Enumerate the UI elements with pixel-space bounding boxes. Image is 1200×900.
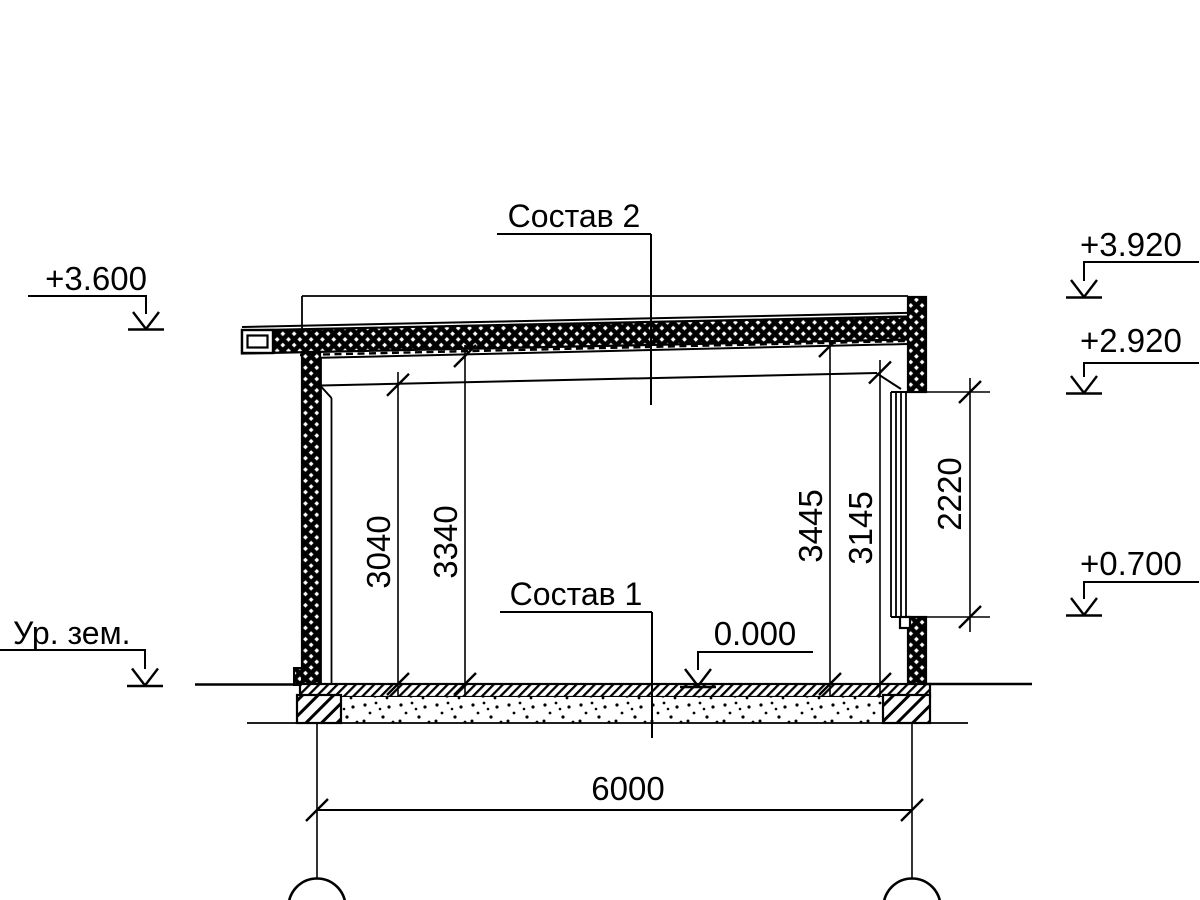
axis-bubble-left (289, 879, 346, 900)
leaders (497, 234, 652, 738)
level-mark-ground (0, 650, 163, 686)
eave-gutter-inner (248, 336, 268, 348)
elevation-beam: +2.920 (1080, 322, 1182, 359)
beam-haunch-left (321, 387, 332, 399)
elevation-sill: +0.700 (1080, 545, 1182, 582)
left-wall-plinth (294, 668, 302, 685)
drawing-sheet: Состав 2 Состав 1 Ур. зем. 0.000 +3.600 … (0, 0, 1200, 900)
dim-text-span: 6000 (591, 770, 664, 807)
dim-text-3040: 3040 (360, 515, 397, 588)
building-structure (195, 296, 1032, 723)
dim-text-3340: 3340 (427, 505, 464, 578)
axis-bubble-right (884, 879, 941, 900)
dim-text-3145: 3145 (842, 491, 879, 564)
window-frame (891, 392, 910, 628)
level-mark-parapet (1066, 262, 1199, 298)
bedding-layer (341, 697, 883, 723)
elevation-parapet: +3.920 (1080, 226, 1182, 263)
left-wall (302, 352, 320, 685)
level-mark-roof-low (28, 296, 164, 330)
section-drawing: Состав 2 Состав 1 Ур. зем. 0.000 +3.600 … (0, 0, 1200, 900)
label-composition2: Состав 2 (508, 198, 641, 234)
level-mark-sill (1066, 582, 1199, 616)
right-wall-upper (908, 297, 926, 392)
elevation-roof-low: +3.600 (45, 260, 147, 297)
elevation-zero: 0.000 (714, 615, 797, 652)
dimensions (306, 335, 990, 821)
label-composition1: Состав 1 (510, 576, 643, 612)
roof-slab (242, 317, 908, 354)
window-sill-block (900, 617, 910, 628)
foundation-left (297, 695, 341, 723)
label-ground-level: Ур. зем. (13, 615, 130, 651)
dim-text-3445: 3445 (792, 489, 829, 562)
level-mark-zero (680, 652, 813, 687)
dim-text-2220: 2220 (931, 457, 968, 530)
foundation-right (883, 695, 930, 723)
level-mark-beam (1066, 363, 1199, 394)
column-axes (289, 723, 941, 900)
